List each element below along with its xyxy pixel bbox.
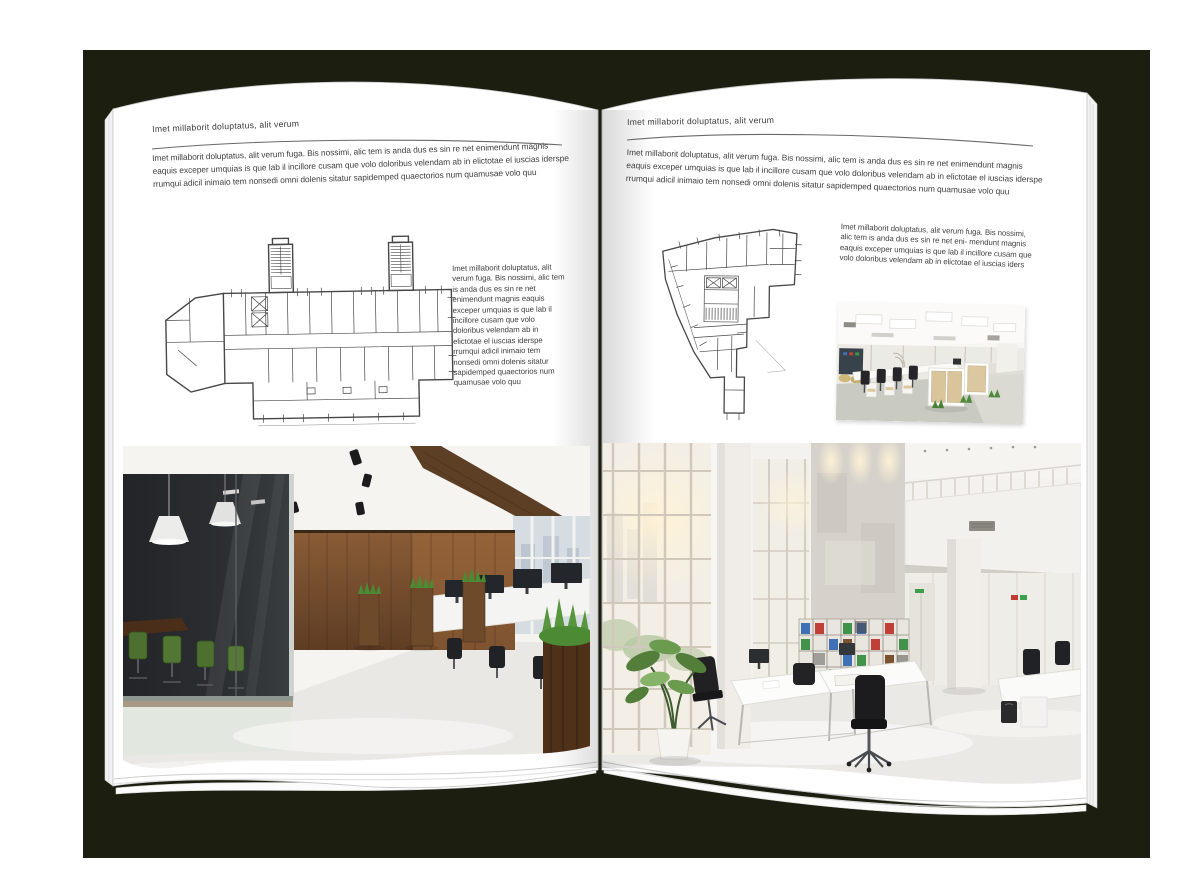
right-sheet-stack — [1087, 93, 1097, 808]
concrete-wall — [811, 443, 905, 619]
plan-partitions — [667, 231, 796, 390]
plan-leader-line — [755, 340, 785, 372]
monitor — [839, 643, 855, 655]
plan-stairs — [271, 244, 412, 288]
fire-sign — [1011, 595, 1018, 600]
plan-partitions — [165, 289, 453, 402]
right-page-column: Imet millaborit doluptatus, alit verum f… — [839, 222, 1033, 271]
photo-office-small — [836, 302, 1025, 424]
exit-sign — [1020, 595, 1027, 600]
photo-office-bright — [603, 443, 1081, 791]
cabinet-wall — [905, 573, 1081, 685]
plan-dimension-line — [258, 423, 416, 426]
floorplan-right — [647, 219, 817, 425]
plan-outer-walls — [164, 235, 453, 420]
left-page-column: Imet millaborit doluptatus, alit verum f… — [452, 262, 568, 388]
floorplan-left — [154, 227, 459, 432]
glazed-facade — [603, 443, 730, 755]
glass-meeting-room — [123, 474, 294, 707]
monitor — [749, 649, 769, 663]
waste-bin — [1001, 701, 1017, 723]
photo-office-dark — [123, 446, 590, 790]
plan-window-ticks — [669, 228, 802, 420]
right-header-rule — [625, 131, 1039, 149]
mezzanine — [905, 443, 1081, 583]
right-page-header: Imet millaborit doluptatus, alit verum — [627, 115, 774, 127]
plan-outer-walls — [661, 228, 797, 413]
book-mockup: Imet millaborit doluptatus, alit verum I… — [0, 0, 1200, 891]
plan-window-ticks — [231, 285, 457, 423]
